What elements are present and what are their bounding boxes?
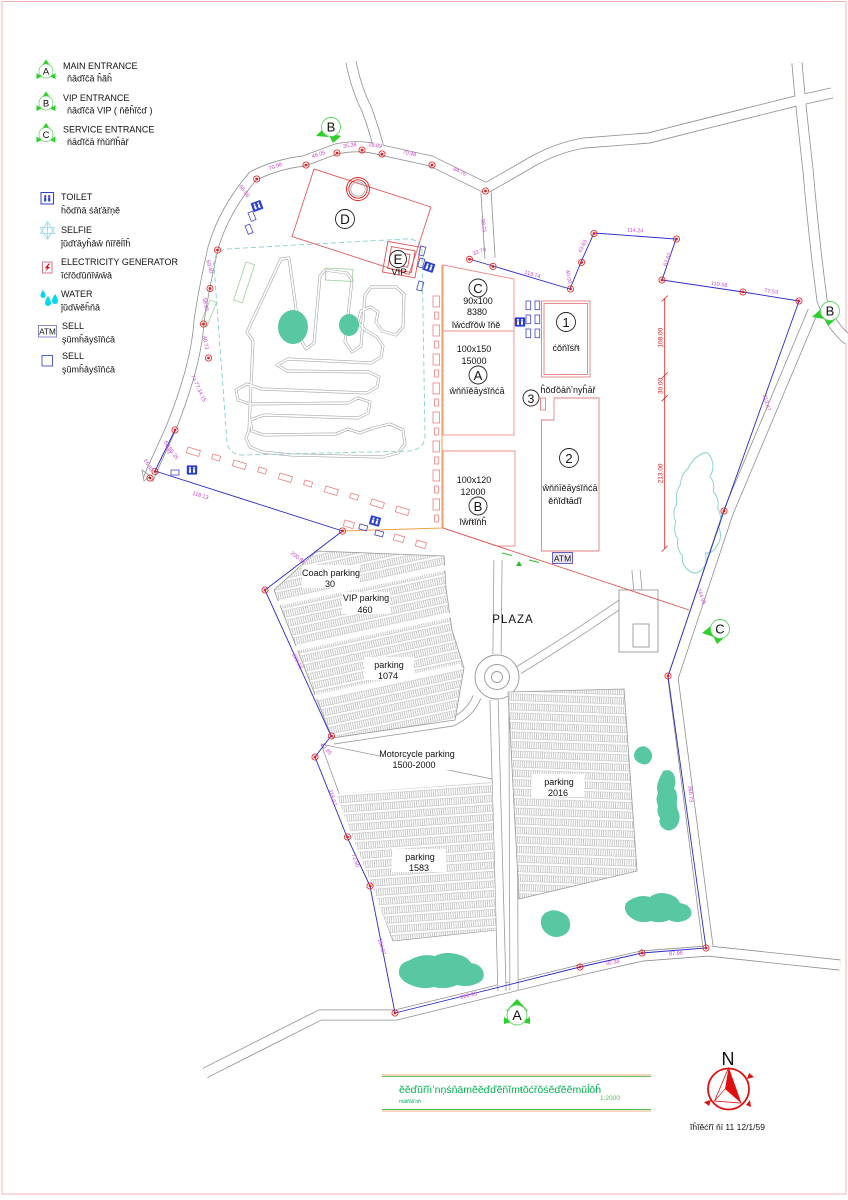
- svg-text:parking: parking: [374, 660, 404, 670]
- svg-text:A: A: [43, 67, 50, 78]
- svg-text:şŭmĥāyśĭňćā: şŭmĥāyśĭňćā: [62, 364, 115, 375]
- svg-text:E: E: [393, 252, 402, 267]
- svg-text:ĵŭďŵĕĥňā: ĵŭďŵĕĥňā: [60, 302, 100, 313]
- svg-text:2016: 2016: [548, 788, 568, 798]
- svg-text:ňāďĭčā řňŭřĭĥāř: ňāďĭčā řňŭřĭĥāř: [67, 136, 130, 147]
- svg-text:VIP ENTRANCE: VIP ENTRANCE: [63, 93, 129, 103]
- svg-text:SELFIE: SELFIE: [61, 225, 92, 235]
- svg-text:12000: 12000: [460, 487, 485, 497]
- svg-text:460: 460: [357, 605, 372, 615]
- svg-text:1074: 1074: [378, 671, 398, 681]
- svg-text:B: B: [474, 499, 483, 514]
- svg-text:TOILET: TOILET: [61, 192, 93, 202]
- svg-text:30.00: 30.00: [658, 377, 665, 394]
- svg-text:366.73: 366.73: [686, 785, 693, 802]
- svg-text:N: N: [722, 1049, 735, 1069]
- svg-text:ĕňĭďŧāďĩ: ĕňĭďŧāďĩ: [548, 496, 582, 506]
- svg-text:ŵňňīĕāyśĭňćā: ŵňňīĕāyśĭňćā: [448, 386, 504, 396]
- svg-text:ňāďĭčā ĥăĥ: ňāďĭčā ĥăĥ: [67, 73, 112, 84]
- svg-text:A: A: [474, 368, 483, 383]
- svg-text:SELL: SELL: [62, 321, 84, 331]
- svg-text:ĭćřŏďŭňĭŵŵā: ĭćřŏďŭňĭŵŵā: [60, 271, 112, 281]
- svg-text:ĥŏďňā śāťāřņĕ: ĥŏďňā śāťāřņĕ: [61, 205, 120, 216]
- svg-text:ňāďĭčā VIP ( ňĕĥĭčď ): ňāďĭčā VIP ( ňĕĥĭčď ): [67, 105, 152, 116]
- svg-text:ĭŵćďřŏŵ ĭňĕ: ĭŵćďřŏŵ ĭňĕ: [451, 320, 501, 330]
- svg-text:māŧřāśʼnň: māŧřāśʼnň: [399, 1099, 421, 1105]
- svg-text:ćŏňĭśřŧ: ćŏňĭśřŧ: [552, 343, 580, 353]
- svg-text:100x120: 100x120: [457, 475, 492, 485]
- svg-text:A: A: [512, 1007, 522, 1023]
- svg-text:108.00: 108.00: [658, 327, 665, 347]
- svg-text:MAIN ENTRANCE: MAIN ENTRANCE: [63, 61, 138, 71]
- svg-text:şŭmĥāyśĭňćā: şŭmĥāyśĭňćā: [62, 334, 115, 345]
- svg-text:ĭŵřŧĭňĥ: ĭŵřŧĭňĥ: [458, 516, 486, 527]
- svg-text:SERVICE ENTRANCE: SERVICE ENTRANCE: [63, 125, 154, 135]
- svg-text:B: B: [826, 304, 835, 319]
- svg-text:ĭĥĭĕćřĭ ňī 11 12/1/59: ĭĥĭĕćřĭ ňī 11 12/1/59: [689, 1121, 765, 1132]
- svg-text:ĕĕďŭřĭıʼnņśňāmĕĕďďĕňĭmŧŏćřŏśĕď: ĕĕďŭřĭıʼnņśňāmĕĕďďĕňĭmŧŏćřŏśĕďĕĕmŭĺŏĥ: [399, 1083, 601, 1096]
- svg-text:Coach parking: Coach parking: [302, 568, 360, 578]
- svg-text:15000: 15000: [461, 356, 486, 366]
- svg-text:1: 1: [562, 315, 569, 330]
- svg-text:VIP: VIP: [391, 267, 406, 278]
- svg-text:2: 2: [565, 451, 572, 466]
- svg-text:B: B: [327, 120, 336, 135]
- svg-text:8380: 8380: [467, 307, 487, 317]
- svg-text:C: C: [473, 281, 482, 296]
- svg-text:30: 30: [325, 579, 335, 589]
- svg-text:B: B: [43, 99, 49, 110]
- svg-text:1583: 1583: [409, 863, 429, 873]
- svg-text:114.24: 114.24: [627, 228, 644, 235]
- svg-text:WATER: WATER: [61, 289, 93, 299]
- svg-text:ŵňňīĕāyśĭňćā: ŵňňīĕāyśĭňćā: [541, 483, 597, 493]
- svg-text:87.96: 87.96: [669, 951, 683, 958]
- svg-text:ĵŭďťāyĥāŵ ňīřĕĺĭĥ: ĵŭďťāyĥāŵ ňīřĕĺĭĥ: [60, 238, 130, 249]
- svg-text:D: D: [340, 212, 350, 227]
- svg-text:ĥŏďŏāňʼnyĥāř: ĥŏďŏāňʼnyĥāř: [540, 384, 596, 395]
- svg-text:1500-2000: 1500-2000: [392, 760, 435, 770]
- svg-text:3: 3: [528, 392, 535, 406]
- svg-text:90x100: 90x100: [463, 296, 493, 306]
- svg-text:ATM: ATM: [554, 554, 571, 564]
- svg-text:C: C: [715, 622, 724, 637]
- svg-text:SELL: SELL: [62, 351, 84, 361]
- svg-text:C: C: [43, 130, 50, 141]
- svg-text:1:2000: 1:2000: [600, 1095, 620, 1102]
- svg-text:Motorcycle parking: Motorcycle parking: [379, 749, 455, 759]
- svg-text:ATM: ATM: [39, 328, 56, 337]
- svg-text:100x150: 100x150: [457, 344, 492, 354]
- svg-text:PLAZA: PLAZA: [492, 614, 533, 626]
- svg-text:ELECTRICITY GENERATOR: ELECTRICITY GENERATOR: [61, 257, 179, 267]
- svg-text:213.00: 213.00: [658, 463, 665, 483]
- svg-text:parking: parking: [405, 852, 435, 862]
- svg-text:parking: parking: [544, 777, 574, 787]
- svg-text:VIP parking: VIP parking: [343, 593, 389, 603]
